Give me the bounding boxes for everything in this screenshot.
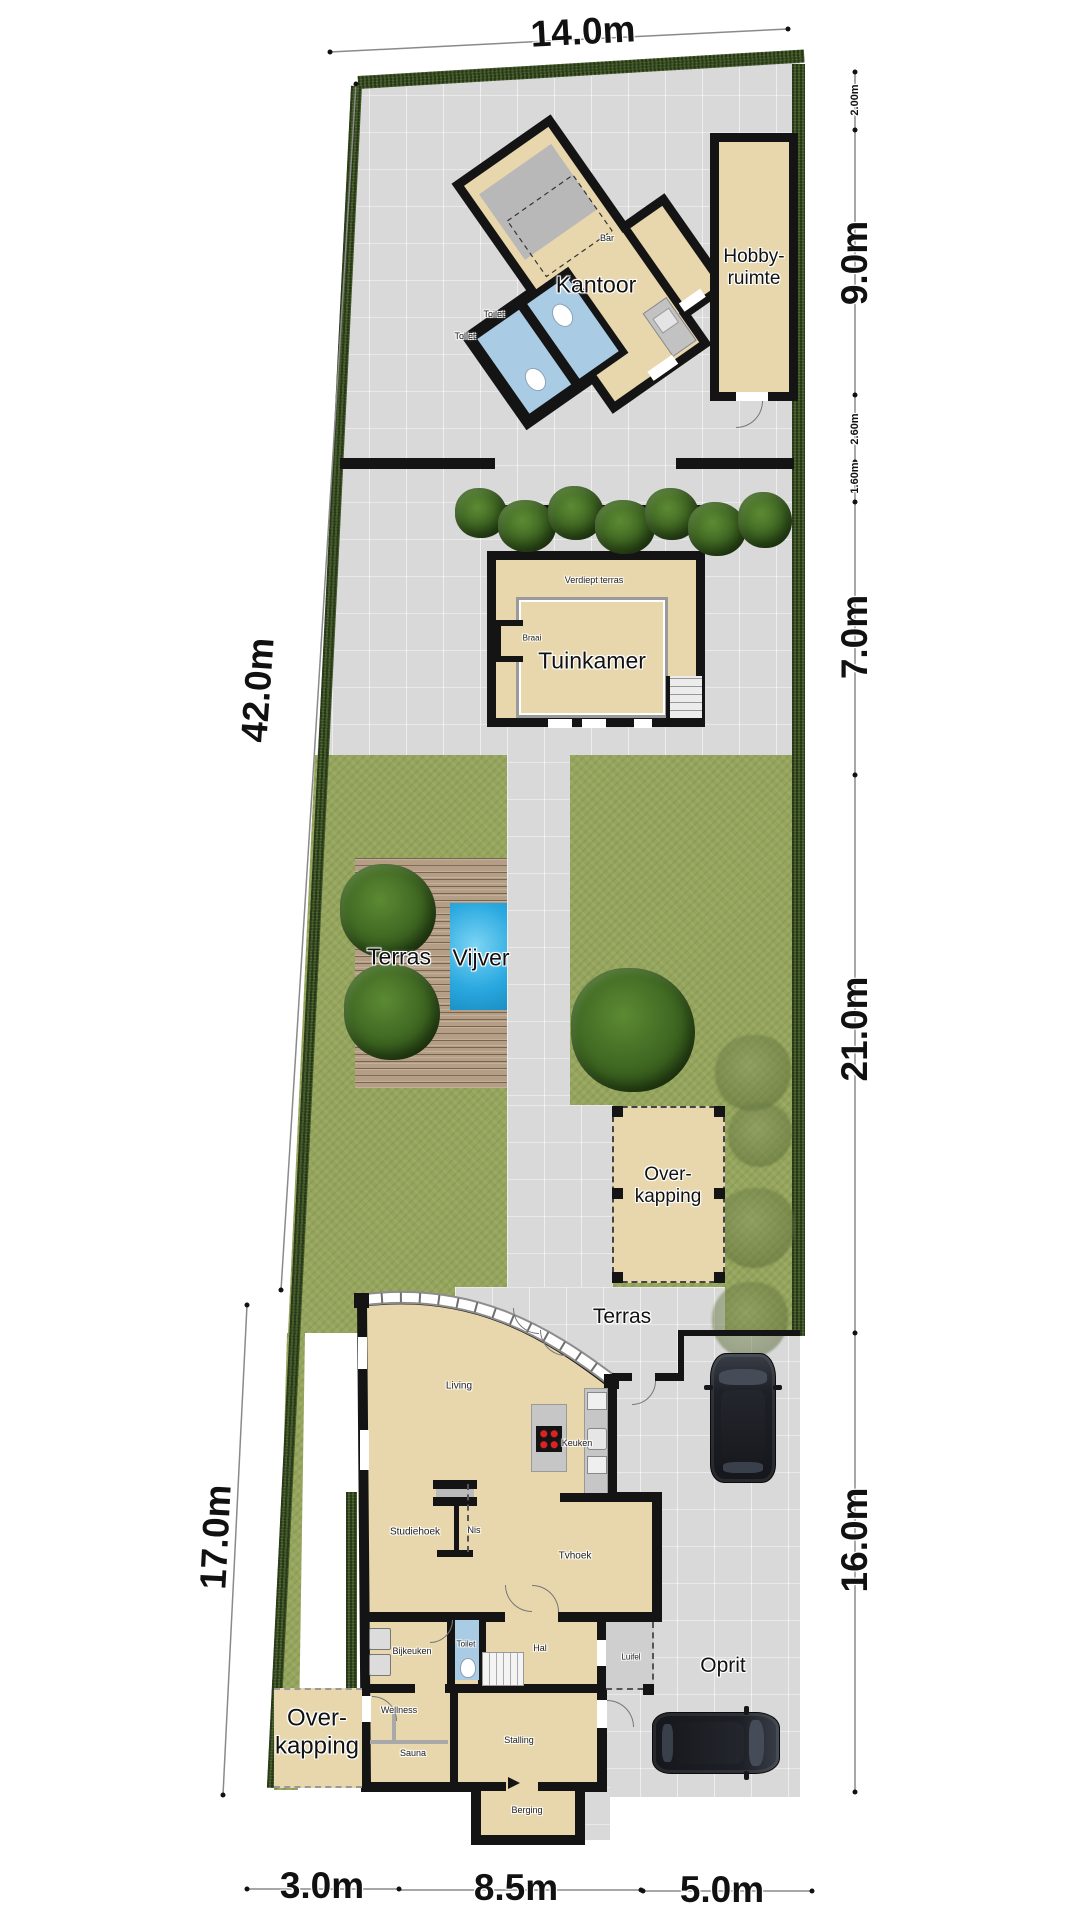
dim-right-small-2: 2.60m xyxy=(849,413,861,444)
wall-berging-top-right xyxy=(538,1782,580,1791)
wall-living-south-right xyxy=(558,1612,656,1622)
hobbyruimte-door-gap xyxy=(736,392,768,401)
buildings xyxy=(0,0,1080,1920)
wall-kitchen-south xyxy=(560,1493,615,1502)
dim-left-total: 42.0m xyxy=(233,636,282,744)
terras-wall-top xyxy=(680,1330,800,1336)
label-toilet-house: Toilet xyxy=(457,1640,476,1649)
dim-right-small-3: 1.60m xyxy=(849,462,861,493)
pergola-plant-7 xyxy=(738,492,792,548)
label-tvhoek: Tvhoek xyxy=(559,1551,592,1562)
washer-icon xyxy=(369,1628,391,1650)
dim-right-2: 7.0m xyxy=(834,595,876,679)
wall-hall-south-left xyxy=(366,1684,415,1693)
braai-nook xyxy=(495,620,523,662)
kitchen-appliance-2 xyxy=(587,1456,607,1474)
tuinkamer-door-gap-3 xyxy=(634,719,652,728)
terras-wall-a xyxy=(612,1373,632,1381)
label-sauna: Sauna xyxy=(400,1748,426,1758)
label-luifel: Luifel xyxy=(621,1653,640,1662)
nis-wall-bottom xyxy=(433,1497,477,1506)
dim-bottom-2: 8.5m xyxy=(474,1867,558,1909)
toilet-fixture xyxy=(460,1658,476,1678)
label-vijver: Vijver xyxy=(452,945,509,972)
label-toilet-kantoor-1: Toilet xyxy=(454,331,475,341)
label-tuinkamer: Tuinkamer xyxy=(538,648,646,675)
dim-bottom-3: 5.0m xyxy=(680,1869,764,1911)
label-oprit: Oprit xyxy=(700,1654,746,1678)
nis-stem xyxy=(454,1506,459,1552)
label-terras-house: Terras xyxy=(593,1305,651,1329)
wall-wellness-stalling xyxy=(450,1688,458,1785)
label-wellness: Wellness xyxy=(381,1705,417,1715)
dim-right-small-1: 2.00m xyxy=(849,84,861,115)
label-studiehoek: Studiehoek xyxy=(390,1527,440,1538)
garden-wall-right xyxy=(676,458,794,469)
window-left-2 xyxy=(360,1430,369,1470)
label-braai: Braai xyxy=(523,634,542,643)
dim-bottom-1: 3.0m xyxy=(280,1865,364,1907)
label-living: Living xyxy=(446,1381,472,1392)
label-overkapping-garden: Over-kapping xyxy=(623,1164,713,1208)
dryer-icon xyxy=(369,1654,391,1676)
tuinkamer-door-gap-1 xyxy=(548,719,572,728)
label-bar: Bar xyxy=(600,233,614,243)
label-hobbyruimte: Hobby-ruimte xyxy=(717,246,791,290)
door-gap-stalling xyxy=(597,1700,607,1728)
car-parked-bottom xyxy=(652,1712,780,1774)
garden-tree-large xyxy=(571,968,695,1092)
berging-arrow-icon xyxy=(508,1777,520,1789)
dim-top: 14.0m xyxy=(530,8,637,55)
window-left-1 xyxy=(358,1337,367,1369)
site-plan: Kantoor Bar Toilet Toilet Hobby-ruimte V… xyxy=(0,0,1080,1920)
kitchen-appliance-1 xyxy=(587,1392,607,1410)
label-nis: Nis xyxy=(468,1525,481,1535)
door-gap-luifel xyxy=(597,1640,606,1666)
label-berging: Berging xyxy=(511,1805,542,1815)
label-kantoor: Kantoor xyxy=(556,272,637,299)
label-stalling: Stalling xyxy=(504,1735,534,1745)
label-bijkeuken: Bijkeuken xyxy=(392,1646,431,1656)
luifel-post xyxy=(643,1684,654,1695)
car-parked-top xyxy=(710,1353,776,1483)
dim-right-4: 16.0m xyxy=(834,1488,876,1593)
dim-right-3: 21.0m xyxy=(834,977,876,1082)
tuinkamer-stairs xyxy=(666,676,702,718)
dim-left-lower: 17.0m xyxy=(192,1484,239,1591)
cooktop xyxy=(536,1426,562,1452)
sauna-glass-wall-h xyxy=(370,1740,448,1744)
terras-wall-b xyxy=(655,1373,684,1381)
nis-wall-top xyxy=(433,1480,477,1489)
label-toilet-kantoor-2: Toilet xyxy=(483,309,504,319)
label-verdiept-terras: Verdiept terras xyxy=(565,575,624,585)
dim-right-1: 9.0m xyxy=(834,221,876,305)
label-overkapping-house: Over-kapping xyxy=(257,1704,377,1759)
deck-tree-2 xyxy=(344,964,440,1060)
label-keuken: Keuken xyxy=(562,1438,593,1448)
tuinkamer-door-gap-2 xyxy=(582,719,606,728)
wall-berging-top-left xyxy=(476,1782,506,1791)
nis-dashed-line xyxy=(467,1484,469,1552)
garden-wall-left xyxy=(340,458,495,469)
hal-stairs xyxy=(482,1652,524,1686)
label-terras-garden: Terras xyxy=(367,944,431,971)
pergola-plant-6 xyxy=(688,502,746,556)
label-hal: Hal xyxy=(533,1643,547,1653)
